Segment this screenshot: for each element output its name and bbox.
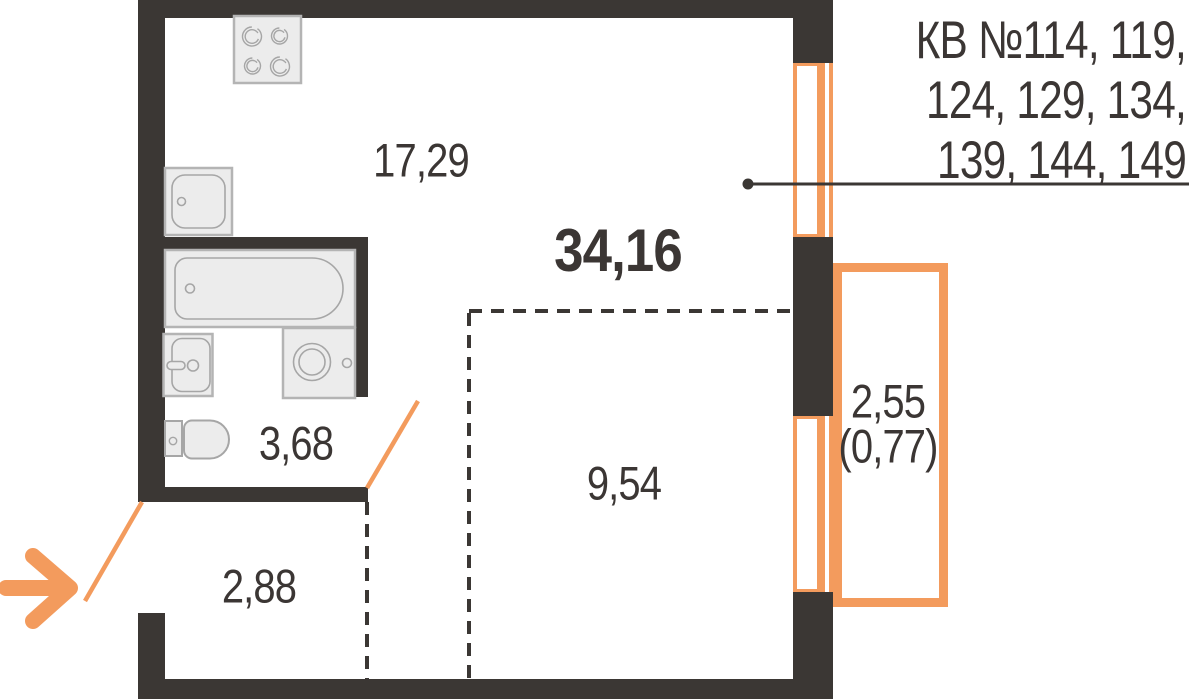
washbasin-icon	[164, 334, 213, 396]
stove-icon	[234, 16, 301, 83]
area-label-hallway: 2,88	[222, 563, 296, 610]
washing-machine-icon	[283, 328, 355, 398]
area-label-balcony-coefficient: (0,77)	[838, 423, 937, 470]
area-label-kitchen-living: 17,29	[373, 137, 469, 184]
bathroom-door-swing	[367, 401, 418, 488]
area-label-balcony: 2,55	[851, 378, 925, 425]
apartment-numbers-line-3: 139, 144, 149	[916, 131, 1186, 191]
apartment-numbers-line-2: 124, 129, 134,	[916, 71, 1186, 131]
apartment-numbers: КВ №114, 119, 124, 129, 134, 139, 144, 1…	[916, 11, 1186, 191]
area-label-room: 9,54	[587, 460, 661, 507]
area-label-bathroom: 3,68	[259, 420, 333, 467]
apartment-numbers-line-1: КВ №114, 119,	[916, 11, 1186, 71]
kitchen-sink-icon	[165, 168, 232, 235]
entrance-door-swing	[85, 502, 142, 601]
bathtub-icon	[165, 250, 355, 327]
total-area-label: 34,16	[554, 221, 682, 281]
floor-plan: 17,29 34,16 9,54 3,68 2,88 2,55 (0,77) К…	[0, 0, 1189, 699]
entrance-arrow-icon	[6, 556, 70, 621]
toilet-icon	[165, 421, 229, 459]
